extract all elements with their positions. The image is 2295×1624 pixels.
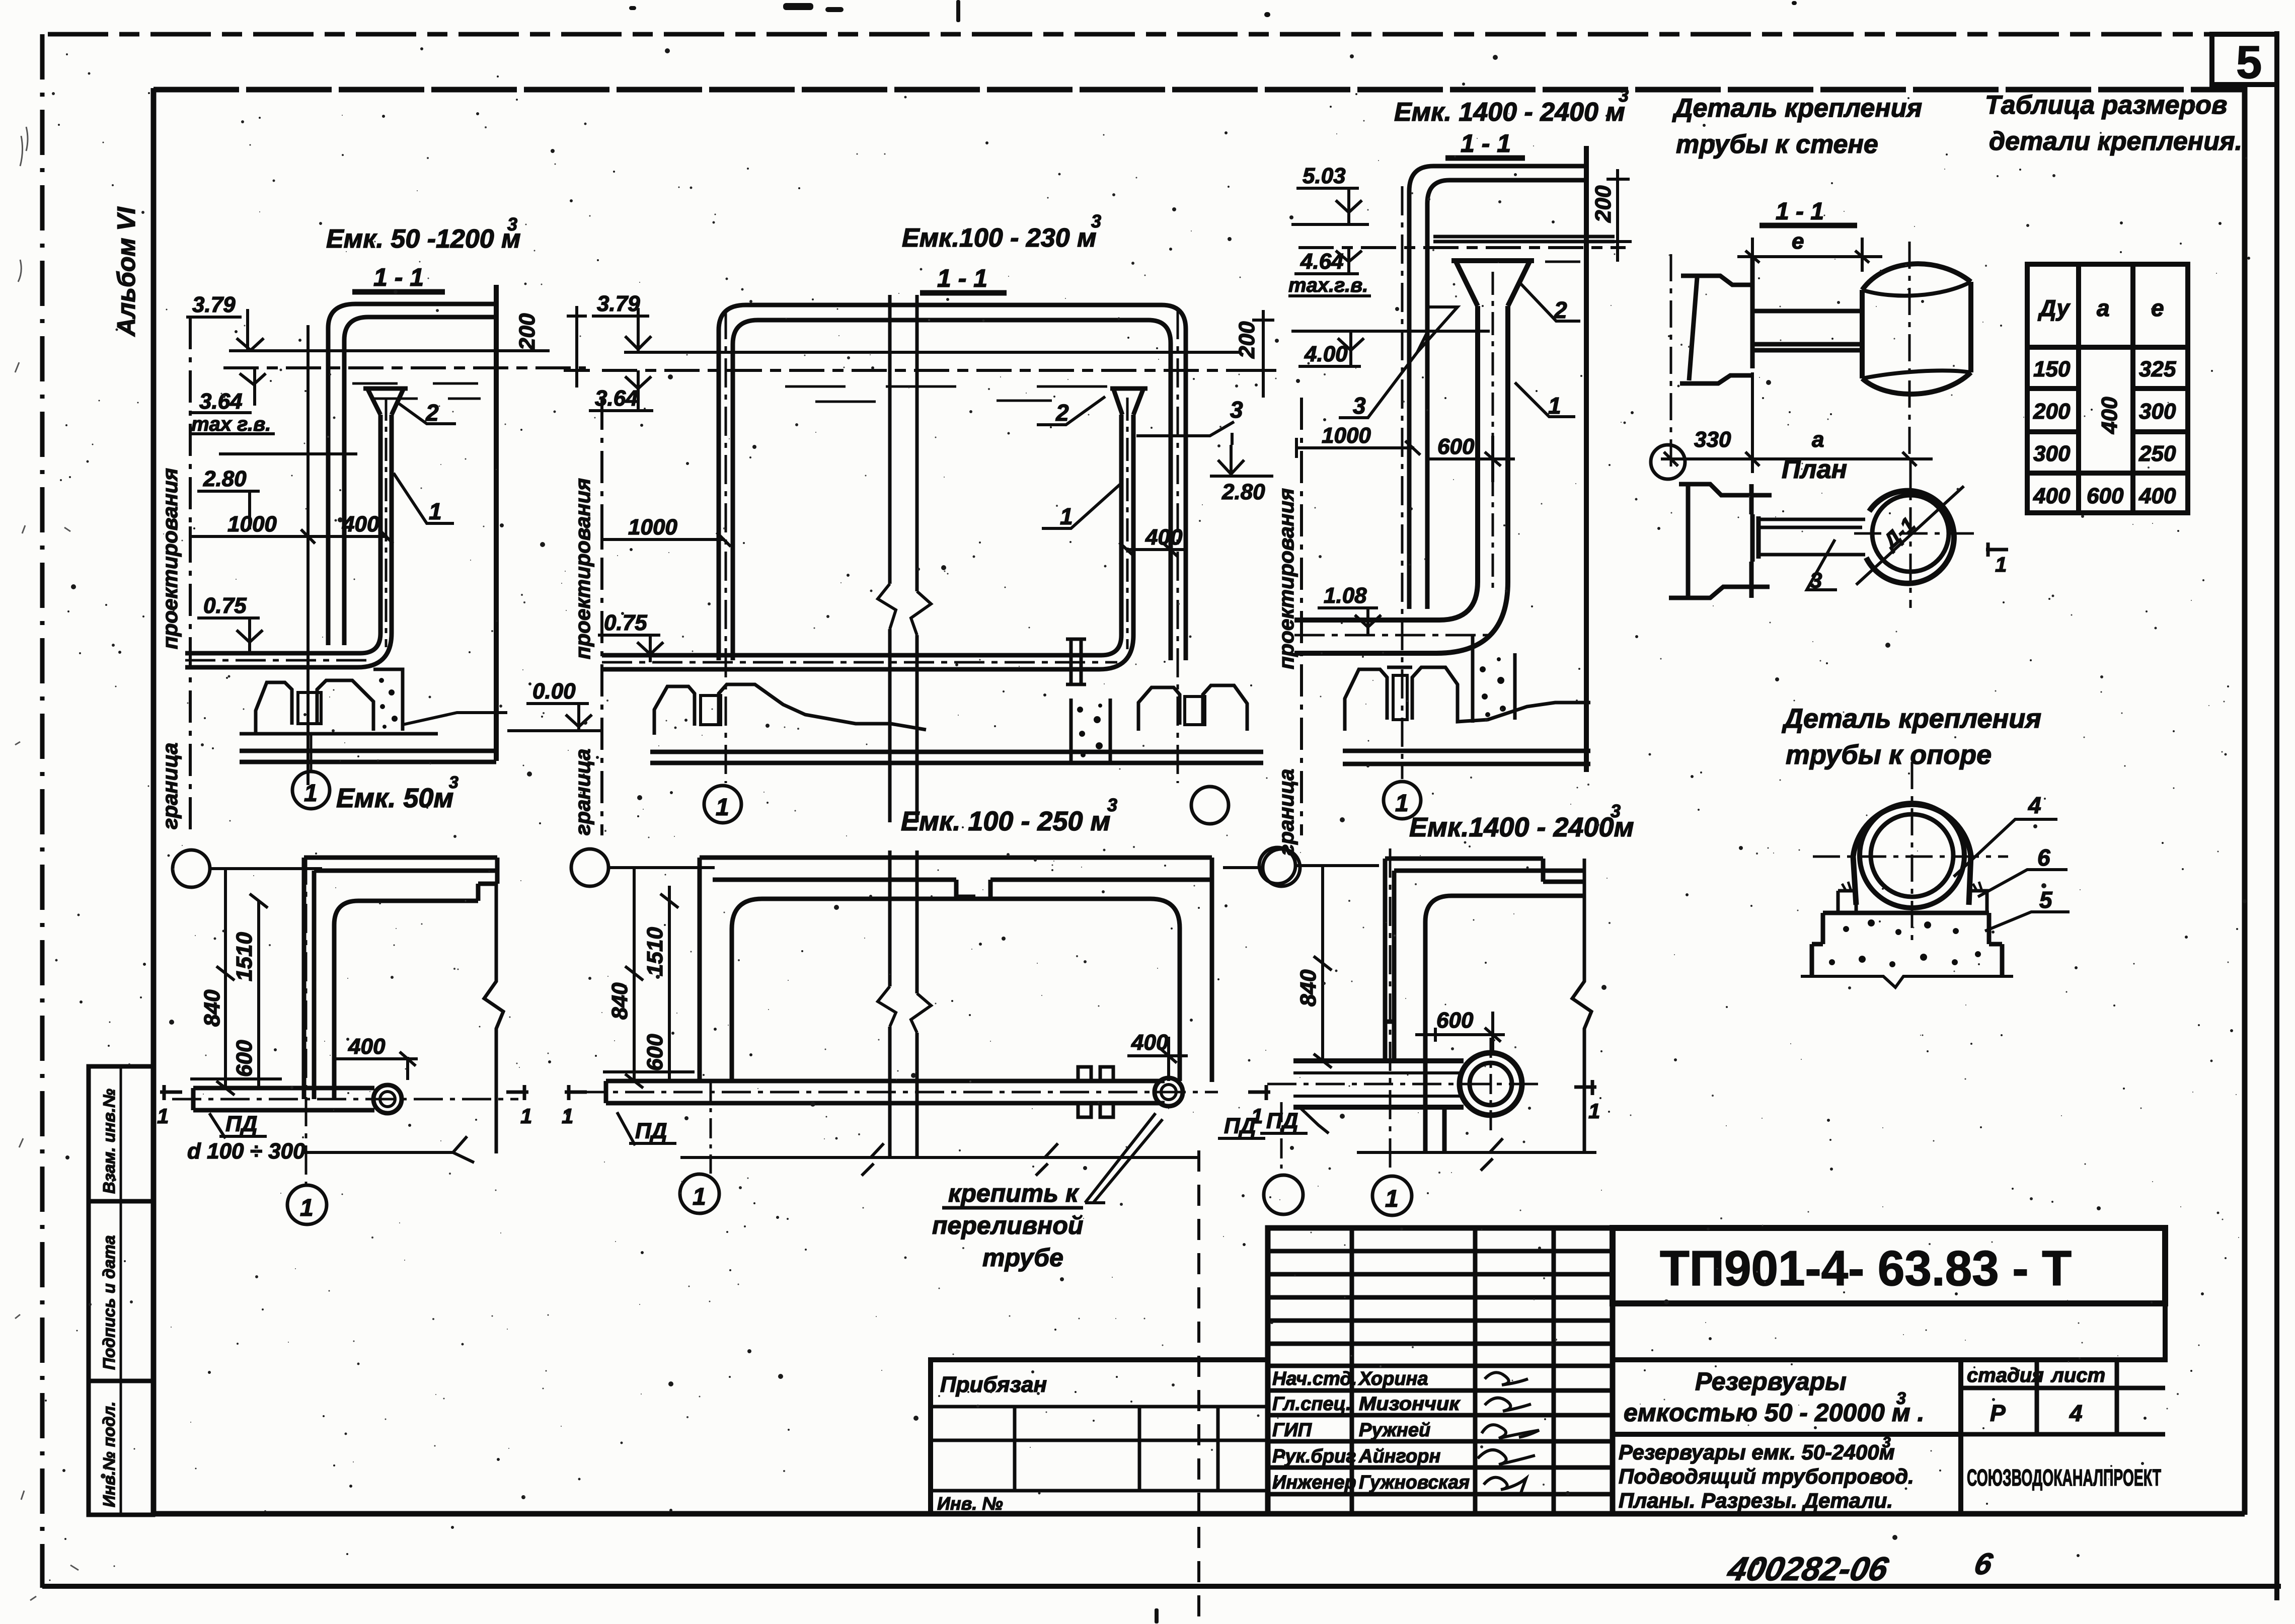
svg-text:3: 3 xyxy=(1611,801,1621,821)
svg-text:1: 1 xyxy=(520,1104,532,1128)
svg-text:3.79: 3.79 xyxy=(192,292,236,317)
svg-text:1.08: 1.08 xyxy=(1324,583,1367,608)
svg-text:4: 4 xyxy=(2069,1400,2083,1426)
svg-text:Инв. №: Инв. № xyxy=(937,1493,1003,1514)
svg-text:1: 1 xyxy=(1385,1186,1399,1212)
svg-text:1 - 1: 1 - 1 xyxy=(373,263,424,291)
svg-text:Альбом VI: Альбом VI xyxy=(112,206,140,337)
svg-text:СОЮЗВОДОКАНАЛПРОЕКТ: СОЮЗВОДОКАНАЛПРОЕКТ xyxy=(1967,1464,2161,1491)
svg-text:330: 330 xyxy=(1694,427,1731,452)
svg-text:5.03: 5.03 xyxy=(1303,164,1346,188)
svg-text:300: 300 xyxy=(2139,399,2176,424)
svg-text:е: е xyxy=(2151,295,2164,321)
svg-text:1: 1 xyxy=(157,1104,169,1128)
svg-text:1: 1 xyxy=(1060,503,1073,529)
svg-text:а: а xyxy=(2097,295,2110,321)
svg-text:Р: Р xyxy=(1990,1400,2006,1426)
svg-text:крепить к: крепить к xyxy=(948,1179,1080,1207)
svg-text:ПД: ПД xyxy=(225,1112,257,1136)
svg-text:300: 300 xyxy=(2033,441,2071,466)
svg-text:1510: 1510 xyxy=(232,932,257,981)
svg-text:Взам. инв.№: Взам. инв.№ xyxy=(100,1089,118,1194)
svg-text:Резервуары емк. 50-2400м: Резервуары емк. 50-2400м xyxy=(1619,1440,1895,1464)
svg-text:1 - 1: 1 - 1 xyxy=(1461,129,1511,158)
svg-text:1: 1 xyxy=(693,1184,706,1210)
svg-text:840: 840 xyxy=(1296,969,1321,1007)
svg-text:е: е xyxy=(1792,229,1804,254)
svg-text:200: 200 xyxy=(2033,399,2071,424)
svg-text:1: 1 xyxy=(1395,790,1409,817)
svg-text:400282-06: 400282-06 xyxy=(1724,1551,1892,1588)
svg-text:3: 3 xyxy=(1107,795,1117,815)
svg-text:1: 1 xyxy=(1251,1104,1263,1128)
svg-text:ПД: ПД xyxy=(1266,1109,1298,1133)
svg-text:1000: 1000 xyxy=(628,515,677,539)
svg-text:6: 6 xyxy=(2037,844,2050,871)
svg-text:0.00: 0.00 xyxy=(532,679,576,704)
svg-text:ТП901-4- 63.83 - Т: ТП901-4- 63.83 - Т xyxy=(1660,1241,2072,1296)
svg-text:3: 3 xyxy=(1230,397,1243,423)
svg-text:Емк.100 - 230 м: Емк.100 - 230 м xyxy=(902,223,1097,253)
svg-text:600: 600 xyxy=(643,1034,667,1071)
svg-text:1 - 1: 1 - 1 xyxy=(937,264,987,292)
svg-text:4.00: 4.00 xyxy=(1304,342,1348,366)
svg-text:1: 1 xyxy=(300,1195,314,1221)
svg-text:Деталь крепления: Деталь крепления xyxy=(1672,94,1922,123)
svg-text:0.75: 0.75 xyxy=(604,610,647,635)
svg-text:трубе: трубе xyxy=(982,1244,1063,1272)
svg-text:Прибязан: Прибязан xyxy=(940,1372,1047,1397)
svg-text:5: 5 xyxy=(2039,887,2053,913)
svg-text:150: 150 xyxy=(2033,357,2071,381)
svg-text:1 - 1: 1 - 1 xyxy=(1776,198,1824,225)
svg-text:Емк. 50м: Емк. 50м xyxy=(336,783,453,813)
svg-text:3: 3 xyxy=(507,214,517,235)
svg-text:3: 3 xyxy=(1896,1389,1906,1408)
svg-text:1: 1 xyxy=(1995,553,2007,576)
svg-text:840: 840 xyxy=(607,982,632,1020)
svg-text:Емк. 50 -1200 м: Емк. 50 -1200 м xyxy=(326,224,521,254)
svg-text:Хорина: Хорина xyxy=(1358,1368,1428,1389)
svg-text:200: 200 xyxy=(515,313,540,351)
svg-text:3.79: 3.79 xyxy=(597,291,640,316)
svg-text:трубы к стене: трубы к стене xyxy=(1676,130,1878,159)
svg-text:325: 325 xyxy=(2139,357,2176,381)
svg-text:250: 250 xyxy=(2138,441,2176,466)
svg-text:3: 3 xyxy=(1882,1434,1891,1451)
svg-text:1510: 1510 xyxy=(643,927,667,976)
svg-text:Гужновская: Гужновская xyxy=(1359,1472,1470,1493)
svg-text:200: 200 xyxy=(1591,185,1616,223)
svg-text:200: 200 xyxy=(1235,321,1259,359)
svg-text:600: 600 xyxy=(2087,484,2124,508)
svg-text:трубы к опоре: трубы к опоре xyxy=(1786,740,1992,770)
svg-text:400: 400 xyxy=(2097,397,2122,434)
svg-text:600: 600 xyxy=(232,1040,257,1077)
svg-text:Подводящий трубопровод.: Подводящий трубопровод. xyxy=(1619,1464,1914,1488)
svg-text:проектирования: проектирования xyxy=(1274,488,1298,669)
svg-text:Емк.1400 - 2400м: Емк.1400 - 2400м xyxy=(1409,812,1634,842)
svg-text:840: 840 xyxy=(200,989,224,1027)
svg-text:ПД: ПД xyxy=(635,1119,667,1143)
svg-text:ГИП: ГИП xyxy=(1272,1420,1312,1441)
svg-text:3: 3 xyxy=(449,773,458,792)
svg-text:600: 600 xyxy=(1436,1008,1474,1033)
svg-text:4: 4 xyxy=(2028,792,2041,818)
svg-text:проектирования: проектирования xyxy=(158,468,182,649)
svg-text:1: 1 xyxy=(562,1104,573,1128)
svg-text:3.64: 3.64 xyxy=(199,389,243,414)
svg-text:3: 3 xyxy=(1353,393,1366,419)
svg-text:проектирования: проектирования xyxy=(571,478,594,659)
svg-text:1: 1 xyxy=(1588,1099,1600,1123)
svg-text:Нач.стд.: Нач.стд. xyxy=(1272,1368,1357,1389)
svg-text:5: 5 xyxy=(2236,37,2262,88)
svg-text:Ду: Ду xyxy=(2037,295,2071,321)
svg-text:Таблица размеров: Таблица размеров xyxy=(1985,91,2227,120)
svg-text:Ружней: Ружней xyxy=(1359,1420,1430,1441)
svg-text:1000: 1000 xyxy=(227,512,277,536)
svg-text:1: 1 xyxy=(716,794,729,821)
svg-text:600: 600 xyxy=(1437,434,1475,459)
svg-text:Планы. Разрезы. Детали.: Планы. Разрезы. Детали. xyxy=(1619,1489,1893,1512)
svg-text:Резервуары: Резервуары xyxy=(1695,1367,1847,1396)
svg-text:1: 1 xyxy=(429,498,442,524)
svg-text:детали крепления.: детали крепления. xyxy=(1989,127,2242,156)
svg-text:0.75: 0.75 xyxy=(203,593,247,618)
svg-text:2.80: 2.80 xyxy=(1221,480,1265,504)
svg-text:d 100 ÷ 300: d 100 ÷ 300 xyxy=(187,1139,305,1164)
svg-text:Инв.№ подл.: Инв.№ подл. xyxy=(100,1402,118,1507)
svg-text:400: 400 xyxy=(342,512,379,536)
svg-text:Подпись и дата: Подпись и дата xyxy=(100,1235,118,1370)
svg-text:Мизончик: Мизончик xyxy=(1359,1394,1461,1415)
svg-text:Емк. 100 - 250 м: Емк. 100 - 250 м xyxy=(901,806,1110,836)
svg-text:емкостью 50 - 20000 м .: емкостью 50 - 20000 м . xyxy=(1624,1399,1925,1427)
svg-text:max г.в.: max г.в. xyxy=(191,413,271,435)
svg-text:2: 2 xyxy=(1055,400,1069,426)
svg-text:1000: 1000 xyxy=(1322,423,1371,448)
svg-text:граница: граница xyxy=(571,749,594,835)
svg-text:Емк. 1400 - 2400 м: Емк. 1400 - 2400 м xyxy=(1394,98,1625,127)
svg-text:граница: граница xyxy=(1274,769,1298,856)
svg-text:лист: лист xyxy=(2050,1364,2105,1386)
svg-text:400: 400 xyxy=(348,1034,386,1059)
svg-text:1: 1 xyxy=(1548,393,1561,419)
svg-text:1: 1 xyxy=(304,780,318,807)
svg-text:а: а xyxy=(1812,427,1824,452)
svg-text:переливной: переливной xyxy=(932,1211,1083,1240)
svg-text:400: 400 xyxy=(2138,484,2176,508)
svg-text:2.80: 2.80 xyxy=(203,467,247,491)
svg-text:План: План xyxy=(1782,455,1847,484)
svg-text:6: 6 xyxy=(1971,1547,1996,1581)
svg-text:стадия: стадия xyxy=(1967,1364,2044,1386)
svg-text:граница: граница xyxy=(158,743,182,829)
svg-text:max.г.в.: max.г.в. xyxy=(1288,274,1368,296)
svg-text:Рук.бриг: Рук.бриг xyxy=(1272,1446,1356,1467)
svg-text:3: 3 xyxy=(1091,211,1101,231)
svg-text:Инженер: Инженер xyxy=(1272,1472,1356,1493)
svg-text:3: 3 xyxy=(1619,85,1629,106)
svg-text:Гл.спец.: Гл.спец. xyxy=(1272,1394,1351,1415)
svg-text:2: 2 xyxy=(425,400,439,426)
svg-text:Айнгорн: Айнгорн xyxy=(1358,1446,1440,1467)
svg-text:Деталь крепления: Деталь крепления xyxy=(1782,704,2041,734)
svg-text:400: 400 xyxy=(2033,484,2071,508)
